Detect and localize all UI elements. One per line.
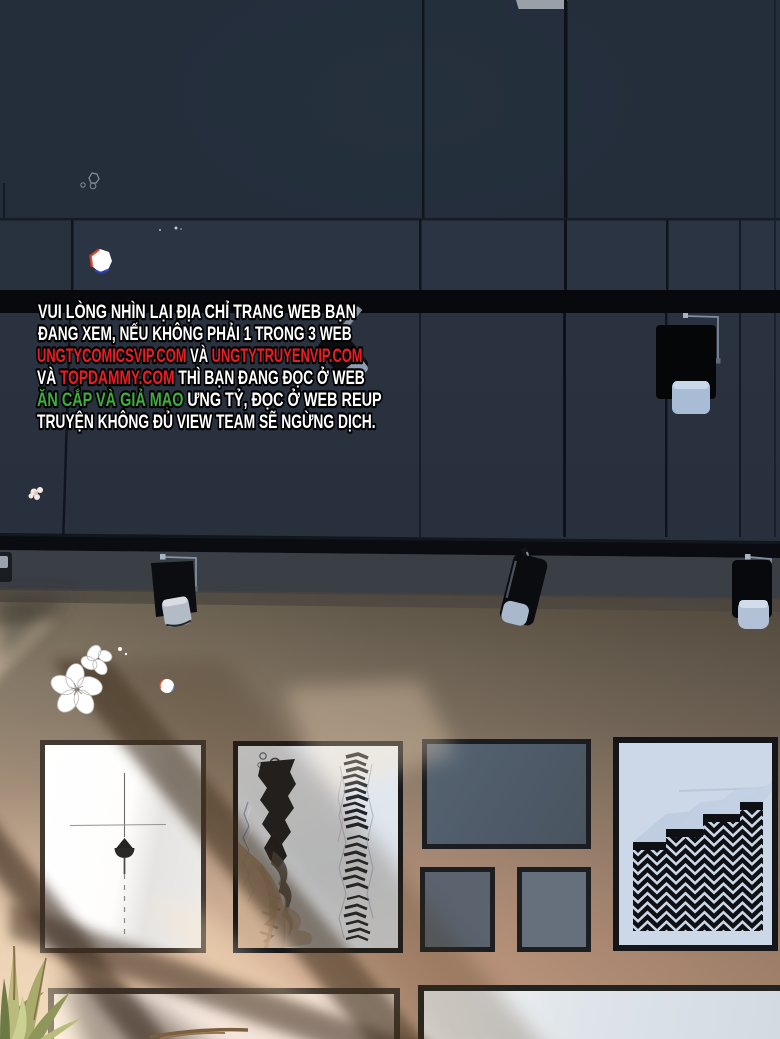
svg-text:VUI LÒNG NHÌN LẠI ĐỊA CHỈ TRAN: VUI LÒNG NHÌN LẠI ĐỊA CHỈ TRANG WEB BẠN <box>38 301 356 323</box>
svg-text:UNGTYCOMICSVIP.COM VÀ UNGTYTRU: UNGTYCOMICSVIP.COM VÀ UNGTYTRUYENVIP.COM <box>37 344 363 366</box>
svg-text:TRUYỆN KHÔNG ĐỦ VIEW TEAM SẼ N: TRUYỆN KHÔNG ĐỦ VIEW TEAM SẼ NGỪNG DỊCH. <box>37 410 376 433</box>
svg-text:ĐANG XEM, NẾU KHÔNG PHẢI 1 TRO: ĐANG XEM, NẾU KHÔNG PHẢI 1 TRONG 3 WEB <box>38 323 352 345</box>
svg-text:VÀ TOPDAMMY.COM THÌ BẠN ĐANG Đ: VÀ TOPDAMMY.COM THÌ BẠN ĐANG ĐỌC Ở WEB <box>37 367 365 389</box>
svg-text:ĂN CẮP VÀ GIẢ MẠO ƯNG TỶ, ĐỌC: ĂN CẮP VÀ GIẢ MẠO ƯNG TỶ, ĐỌC Ở WEB REUP <box>37 388 382 411</box>
